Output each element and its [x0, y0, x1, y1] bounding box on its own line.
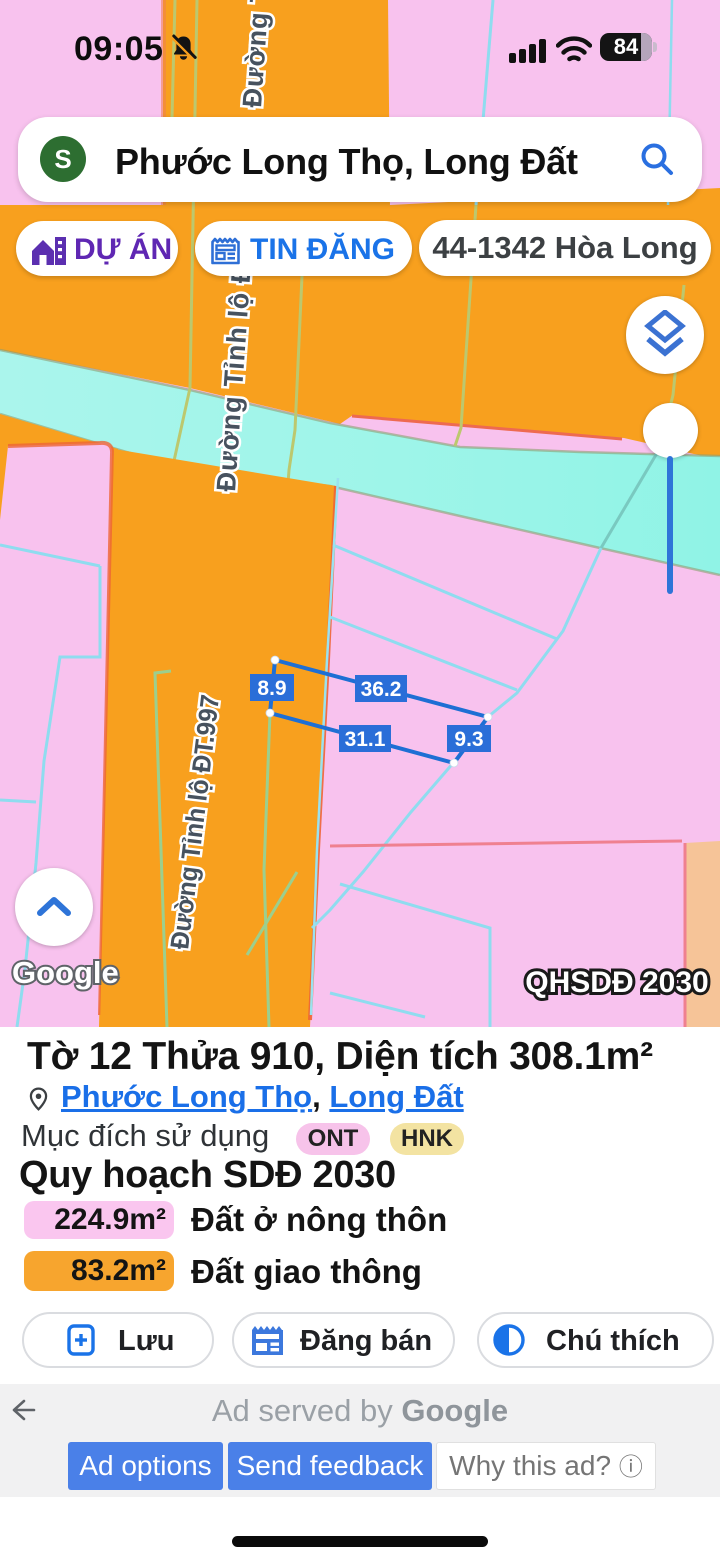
svg-text:31.1: 31.1: [345, 728, 386, 751]
svg-text:9.3: 9.3: [454, 728, 483, 751]
svg-text:Google: Google: [12, 955, 119, 990]
svg-text:36.2: 36.2: [361, 678, 402, 701]
svg-text:8.9: 8.9: [257, 677, 286, 700]
svg-text:QHSDĐ 2030: QHSDĐ 2030: [525, 966, 708, 999]
